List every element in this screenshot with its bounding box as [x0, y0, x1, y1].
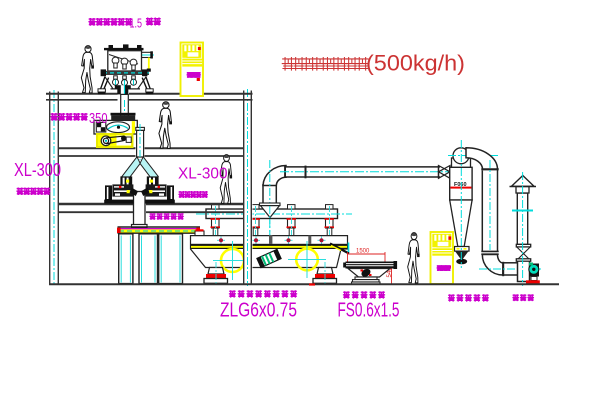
svg-text:1.5: 1.5	[130, 16, 143, 31]
svg-text:XL-300: XL-300	[14, 159, 61, 180]
svg-text:F060: F060	[454, 182, 467, 188]
svg-text:(500kg/h): (500kg/h)	[366, 51, 465, 76]
svg-text:FS0.6x1.5: FS0.6x1.5	[338, 299, 400, 321]
svg-text:XL-300: XL-300	[178, 165, 228, 182]
svg-text:1500: 1500	[356, 249, 370, 255]
svg-text:ZLG6x0.75: ZLG6x0.75	[220, 298, 297, 321]
svg-text:350: 350	[89, 110, 108, 127]
